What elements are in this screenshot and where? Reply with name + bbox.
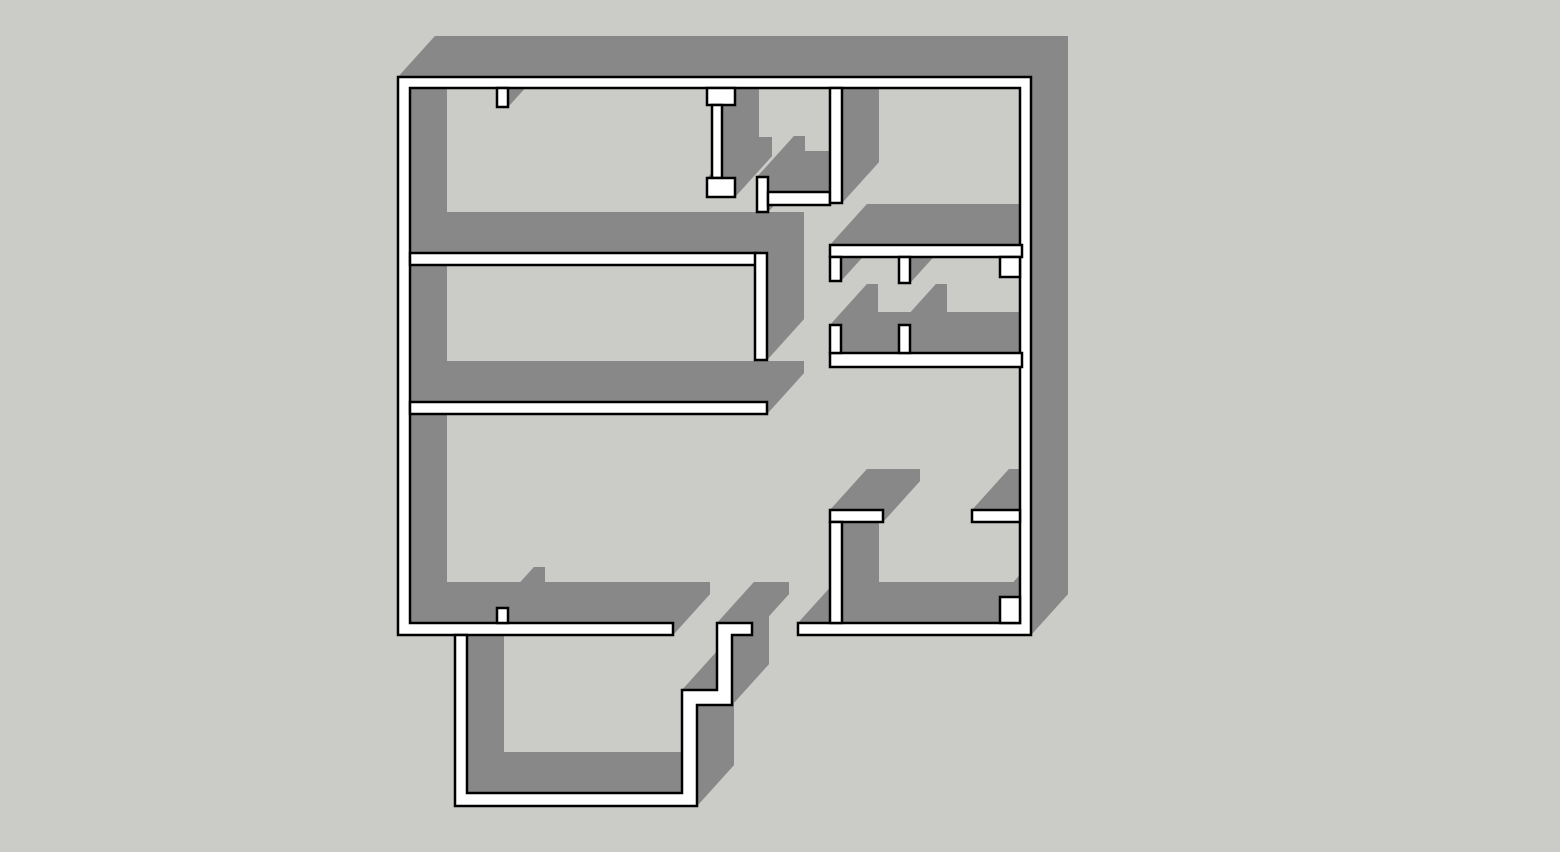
bath-west-stub [830, 257, 841, 281]
bath-south-wall [830, 353, 1022, 367]
closet-east-wall [830, 88, 842, 203]
room1-east-wall [712, 105, 722, 178]
room2-north-wall [410, 253, 757, 265]
bedroom-west-wall [830, 522, 842, 623]
closet-door-post [757, 177, 768, 212]
bedroom-north-wall-west [830, 510, 883, 522]
room3-door-stop [497, 608, 508, 623]
room1-east-wall-cap-top [707, 88, 735, 105]
hall-west-wall [755, 253, 767, 360]
bedroom-north-wall-east [972, 510, 1020, 522]
sketchup-canvas [0, 0, 1560, 852]
bath-ne-pilaster [1000, 257, 1020, 277]
room1-east-wall-cap-bottom [707, 178, 735, 197]
closet-south-wall [768, 192, 830, 205]
bath-divider-wall [899, 325, 910, 353]
bath-west-wall-lower [830, 325, 841, 353]
bath-north-wall [830, 245, 1022, 257]
ground-plane [0, 0, 1560, 852]
bedroom-se-pier [1000, 597, 1020, 623]
room2-south-wall [410, 402, 767, 414]
floor-plan-svg [0, 0, 1560, 852]
bath-mid-stub [899, 257, 910, 283]
room1-door-stop [497, 88, 508, 107]
